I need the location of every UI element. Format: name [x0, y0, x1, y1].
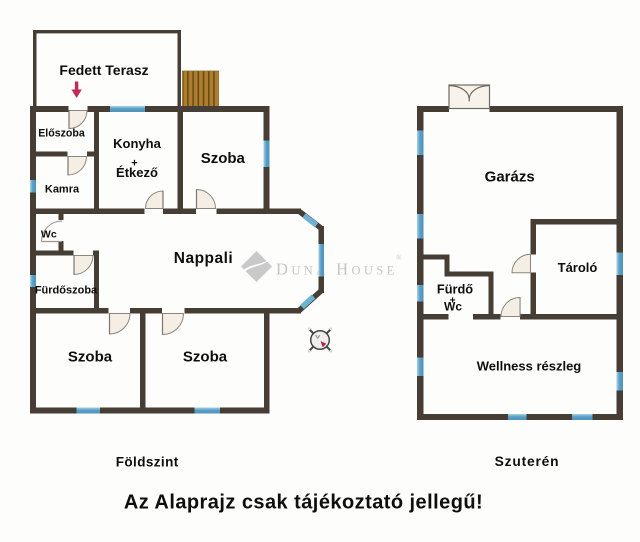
- svg-text:Wc: Wc: [41, 229, 57, 241]
- svg-text:®: ®: [396, 254, 402, 262]
- svg-text:Szuterén: Szuterén: [495, 454, 560, 469]
- svg-text:Wellness részleg: Wellness részleg: [477, 359, 582, 374]
- svg-text:Szoba: Szoba: [201, 150, 246, 167]
- svg-text:Fürdő: Fürdő: [437, 282, 473, 297]
- svg-text:Előszoba: Előszoba: [38, 128, 85, 140]
- svg-text:Szoba: Szoba: [183, 349, 228, 366]
- svg-text:Étkező: Étkező: [116, 165, 158, 180]
- svg-text:Nappali: Nappali: [174, 250, 233, 267]
- svg-text:Konyha: Konyha: [113, 136, 161, 151]
- svg-text:Földszint: Földszint: [116, 455, 179, 470]
- svg-text:Szoba: Szoba: [68, 349, 113, 366]
- svg-text:Garázs: Garázs: [485, 169, 535, 186]
- svg-text:Fedett Terasz: Fedett Terasz: [59, 62, 148, 78]
- svg-text:Tároló: Tároló: [558, 260, 598, 275]
- svg-text:Kamra: Kamra: [45, 184, 80, 196]
- svg-text:Fürdőszoba: Fürdőszoba: [35, 285, 98, 297]
- svg-text:Wc: Wc: [444, 300, 462, 314]
- svg-text:Az Alaprajz csak tájékoztató j: Az Alaprajz csak tájékoztató jellegű!: [124, 492, 483, 514]
